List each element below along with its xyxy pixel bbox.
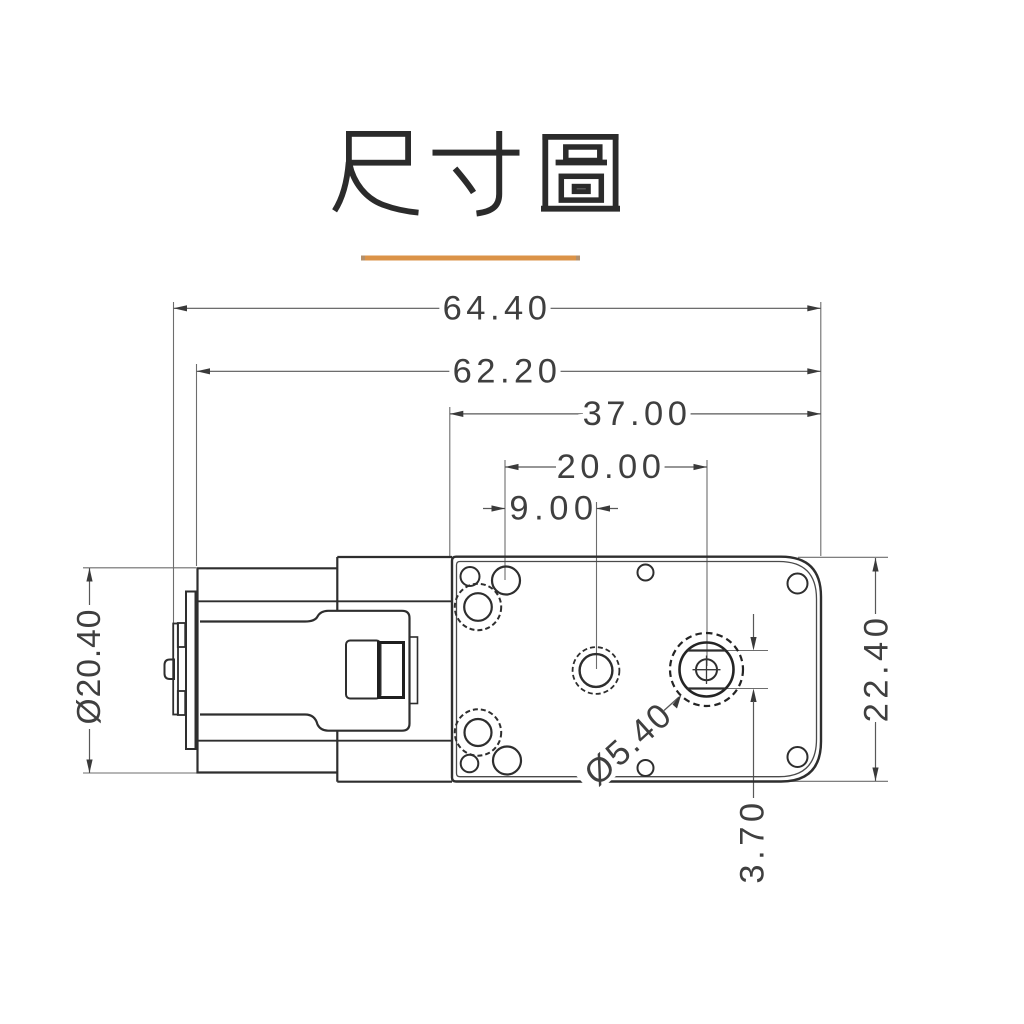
svg-text:64.40: 64.40 [443, 289, 552, 327]
svg-text:62.20: 62.20 [453, 352, 562, 390]
svg-text:37.00: 37.00 [583, 395, 692, 433]
svg-text:3.70: 3.70 [734, 798, 772, 883]
svg-text:Ø20.40: Ø20.40 [71, 609, 108, 725]
svg-text:22.40: 22.40 [858, 614, 896, 723]
svg-text:20.00: 20.00 [557, 448, 666, 486]
svg-text:9.00: 9.00 [509, 490, 598, 528]
